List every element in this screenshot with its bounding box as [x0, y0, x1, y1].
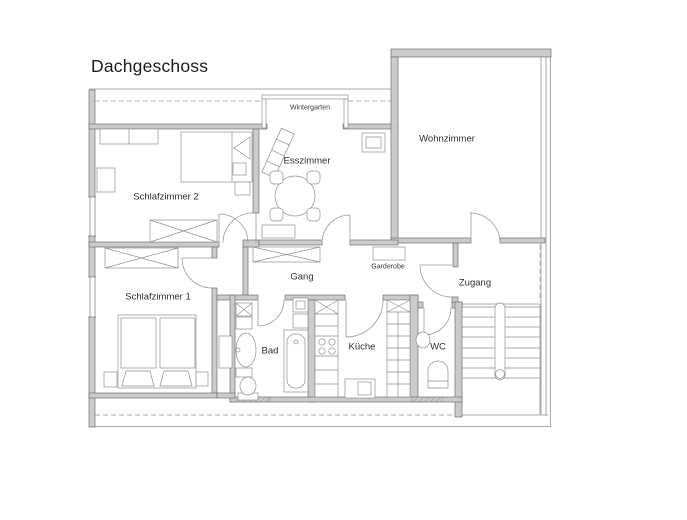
door-arc-icon [471, 212, 500, 243]
nightstand-icon [196, 372, 208, 386]
door-arc-icon [420, 265, 452, 297]
wardrobe-icon [105, 248, 178, 268]
wc-fixtures [416, 332, 448, 388]
door-arc-icon [258, 300, 284, 326]
door-arc-icon [182, 258, 212, 288]
door-arc-icon [424, 308, 451, 335]
room-label-schlafzimmer-2: Schlafzimmer 2 [133, 192, 198, 203]
sideboard-icon [262, 225, 295, 238]
kitchen-counter-icon [315, 300, 338, 397]
kitchen-counter-icon [387, 300, 410, 397]
room-label-garderobe: Garderobe [371, 264, 404, 271]
sink-icon [416, 332, 430, 348]
handrail-icon [495, 303, 505, 380]
window-icon [88, 197, 97, 236]
wardrobe-icon [253, 247, 320, 262]
dresser-icon [100, 129, 158, 144]
chair-icon [307, 171, 320, 184]
door-arc-icon [322, 215, 350, 243]
staircase [462, 303, 540, 380]
wintergarten-bay [262, 95, 348, 128]
sink-icon [236, 333, 256, 367]
lounger-icon [262, 128, 294, 178]
room-label-kueche: Küche [349, 342, 376, 353]
single-bed-icon [181, 132, 252, 182]
floor-plan-page: Dachgeschoss [0, 0, 687, 520]
shelf-icon [235, 182, 250, 195]
shelf-icon [362, 133, 385, 152]
chair-icon [270, 208, 283, 221]
chair-icon [270, 171, 283, 184]
double-bed-icon [118, 315, 196, 388]
room-label-bad: Bad [262, 346, 279, 357]
door-arc-icon [346, 300, 383, 337]
room-label-schlafzimmer-1: Schlafzimmer 1 [125, 292, 190, 303]
window-icon [88, 277, 97, 317]
room-label-wc: WC [430, 342, 446, 353]
room-label-wintergarten: Wintergarten [290, 105, 330, 112]
room-label-zugang: Zugang [459, 278, 491, 289]
cabinet-icon [97, 168, 115, 192]
room-label-gang: Gang [290, 272, 313, 283]
corridor-furniture [253, 247, 405, 262]
boiler-icon [293, 298, 308, 328]
dining-room-furniture [262, 128, 385, 238]
coat-rack-icon [373, 247, 405, 260]
bathtub-icon [284, 330, 308, 392]
dishwasher-icon [345, 379, 375, 398]
toilet-icon [238, 377, 258, 400]
floor-plan-drawing [0, 0, 687, 520]
chair-icon [307, 208, 320, 221]
toilet-icon [428, 361, 448, 388]
wardrobe-icon [150, 220, 217, 242]
nightstand-icon [104, 372, 117, 387]
door-arc-icon [223, 213, 256, 243]
shelf-icon [219, 336, 232, 368]
room-label-esszimmer: Esszimmer [284, 156, 331, 167]
room-label-wohnzimmer: Wohnzimmer [419, 134, 475, 145]
